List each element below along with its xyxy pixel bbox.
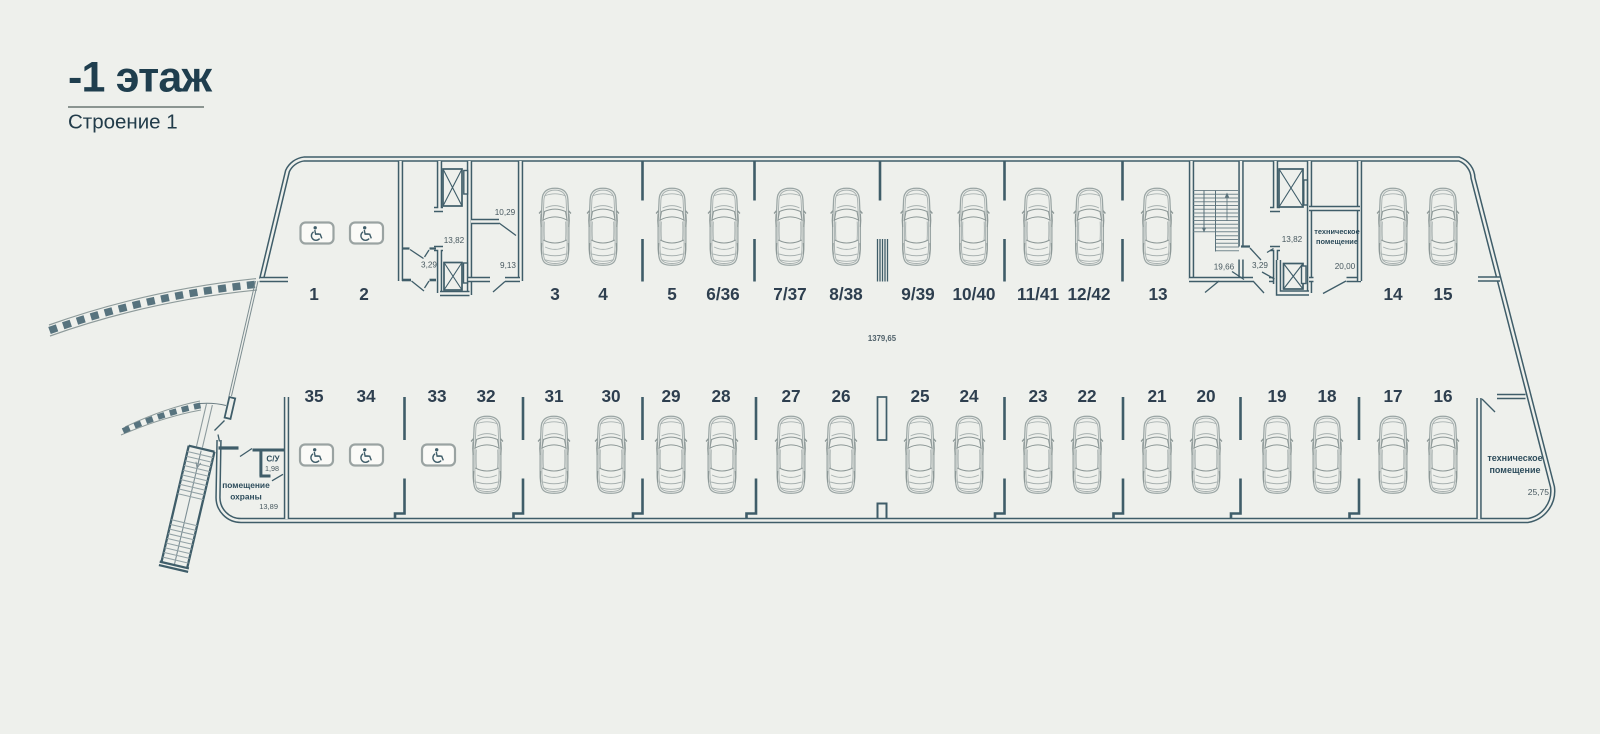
svg-text:13,82: 13,82 bbox=[444, 236, 465, 245]
svg-text:1,98: 1,98 bbox=[265, 464, 279, 473]
svg-text:33: 33 bbox=[427, 386, 446, 406]
svg-text:Строение 1: Строение 1 bbox=[68, 111, 178, 134]
svg-text:19,66: 19,66 bbox=[1214, 263, 1235, 272]
svg-text:помещение: помещение bbox=[1489, 465, 1540, 475]
svg-text:3: 3 bbox=[550, 284, 560, 304]
svg-text:-1 этаж: -1 этаж bbox=[68, 54, 213, 102]
svg-text:6/36: 6/36 bbox=[706, 284, 739, 304]
svg-text:помещение: помещение bbox=[222, 480, 270, 490]
svg-text:7/37: 7/37 bbox=[773, 284, 806, 304]
svg-text:1379,65: 1379,65 bbox=[868, 334, 897, 343]
svg-text:4: 4 bbox=[598, 284, 608, 304]
svg-text:9,13: 9,13 bbox=[500, 261, 516, 270]
svg-text:17: 17 bbox=[1383, 386, 1402, 406]
svg-text:21: 21 bbox=[1147, 386, 1167, 406]
svg-text:техническое: техническое bbox=[1487, 453, 1542, 463]
svg-text:18: 18 bbox=[1317, 386, 1337, 406]
svg-text:27: 27 bbox=[781, 386, 800, 406]
svg-text:13: 13 bbox=[1148, 284, 1167, 304]
svg-text:13,82: 13,82 bbox=[1282, 235, 1303, 244]
svg-text:25: 25 bbox=[910, 386, 930, 406]
svg-text:26: 26 bbox=[831, 386, 850, 406]
svg-text:10/40: 10/40 bbox=[952, 284, 995, 304]
svg-text:34: 34 bbox=[356, 386, 376, 406]
svg-text:13,89: 13,89 bbox=[259, 502, 278, 511]
svg-text:24: 24 bbox=[959, 386, 979, 406]
svg-text:30: 30 bbox=[601, 386, 620, 406]
svg-text:28: 28 bbox=[711, 386, 731, 406]
svg-text:25,75: 25,75 bbox=[1528, 487, 1550, 497]
svg-text:31: 31 bbox=[544, 386, 564, 406]
svg-text:С/У: С/У bbox=[266, 455, 280, 464]
svg-text:5: 5 bbox=[667, 284, 677, 304]
svg-text:32: 32 bbox=[476, 386, 495, 406]
svg-text:23: 23 bbox=[1028, 386, 1047, 406]
svg-text:1: 1 bbox=[309, 284, 319, 304]
svg-text:20: 20 bbox=[1196, 386, 1215, 406]
svg-text:15: 15 bbox=[1433, 284, 1453, 304]
svg-text:20,00: 20,00 bbox=[1335, 262, 1356, 271]
svg-text:35: 35 bbox=[304, 386, 324, 406]
svg-text:19: 19 bbox=[1267, 386, 1286, 406]
svg-text:охраны: охраны bbox=[230, 492, 262, 502]
svg-text:9/39: 9/39 bbox=[901, 284, 934, 304]
svg-text:техническое: техническое bbox=[1314, 227, 1359, 236]
svg-text:22: 22 bbox=[1077, 386, 1096, 406]
svg-text:16: 16 bbox=[1433, 386, 1452, 406]
svg-text:2: 2 bbox=[359, 284, 369, 304]
svg-text:14: 14 bbox=[1383, 284, 1403, 304]
svg-text:11/41: 11/41 bbox=[1017, 284, 1060, 304]
svg-text:10,29: 10,29 bbox=[495, 208, 516, 217]
svg-text:3,29: 3,29 bbox=[1252, 261, 1268, 270]
svg-text:29: 29 bbox=[661, 386, 680, 406]
svg-text:помещение: помещение bbox=[1316, 237, 1358, 246]
svg-text:3,29: 3,29 bbox=[421, 261, 437, 270]
svg-text:12/42: 12/42 bbox=[1067, 284, 1110, 304]
svg-text:8/38: 8/38 bbox=[829, 284, 863, 304]
